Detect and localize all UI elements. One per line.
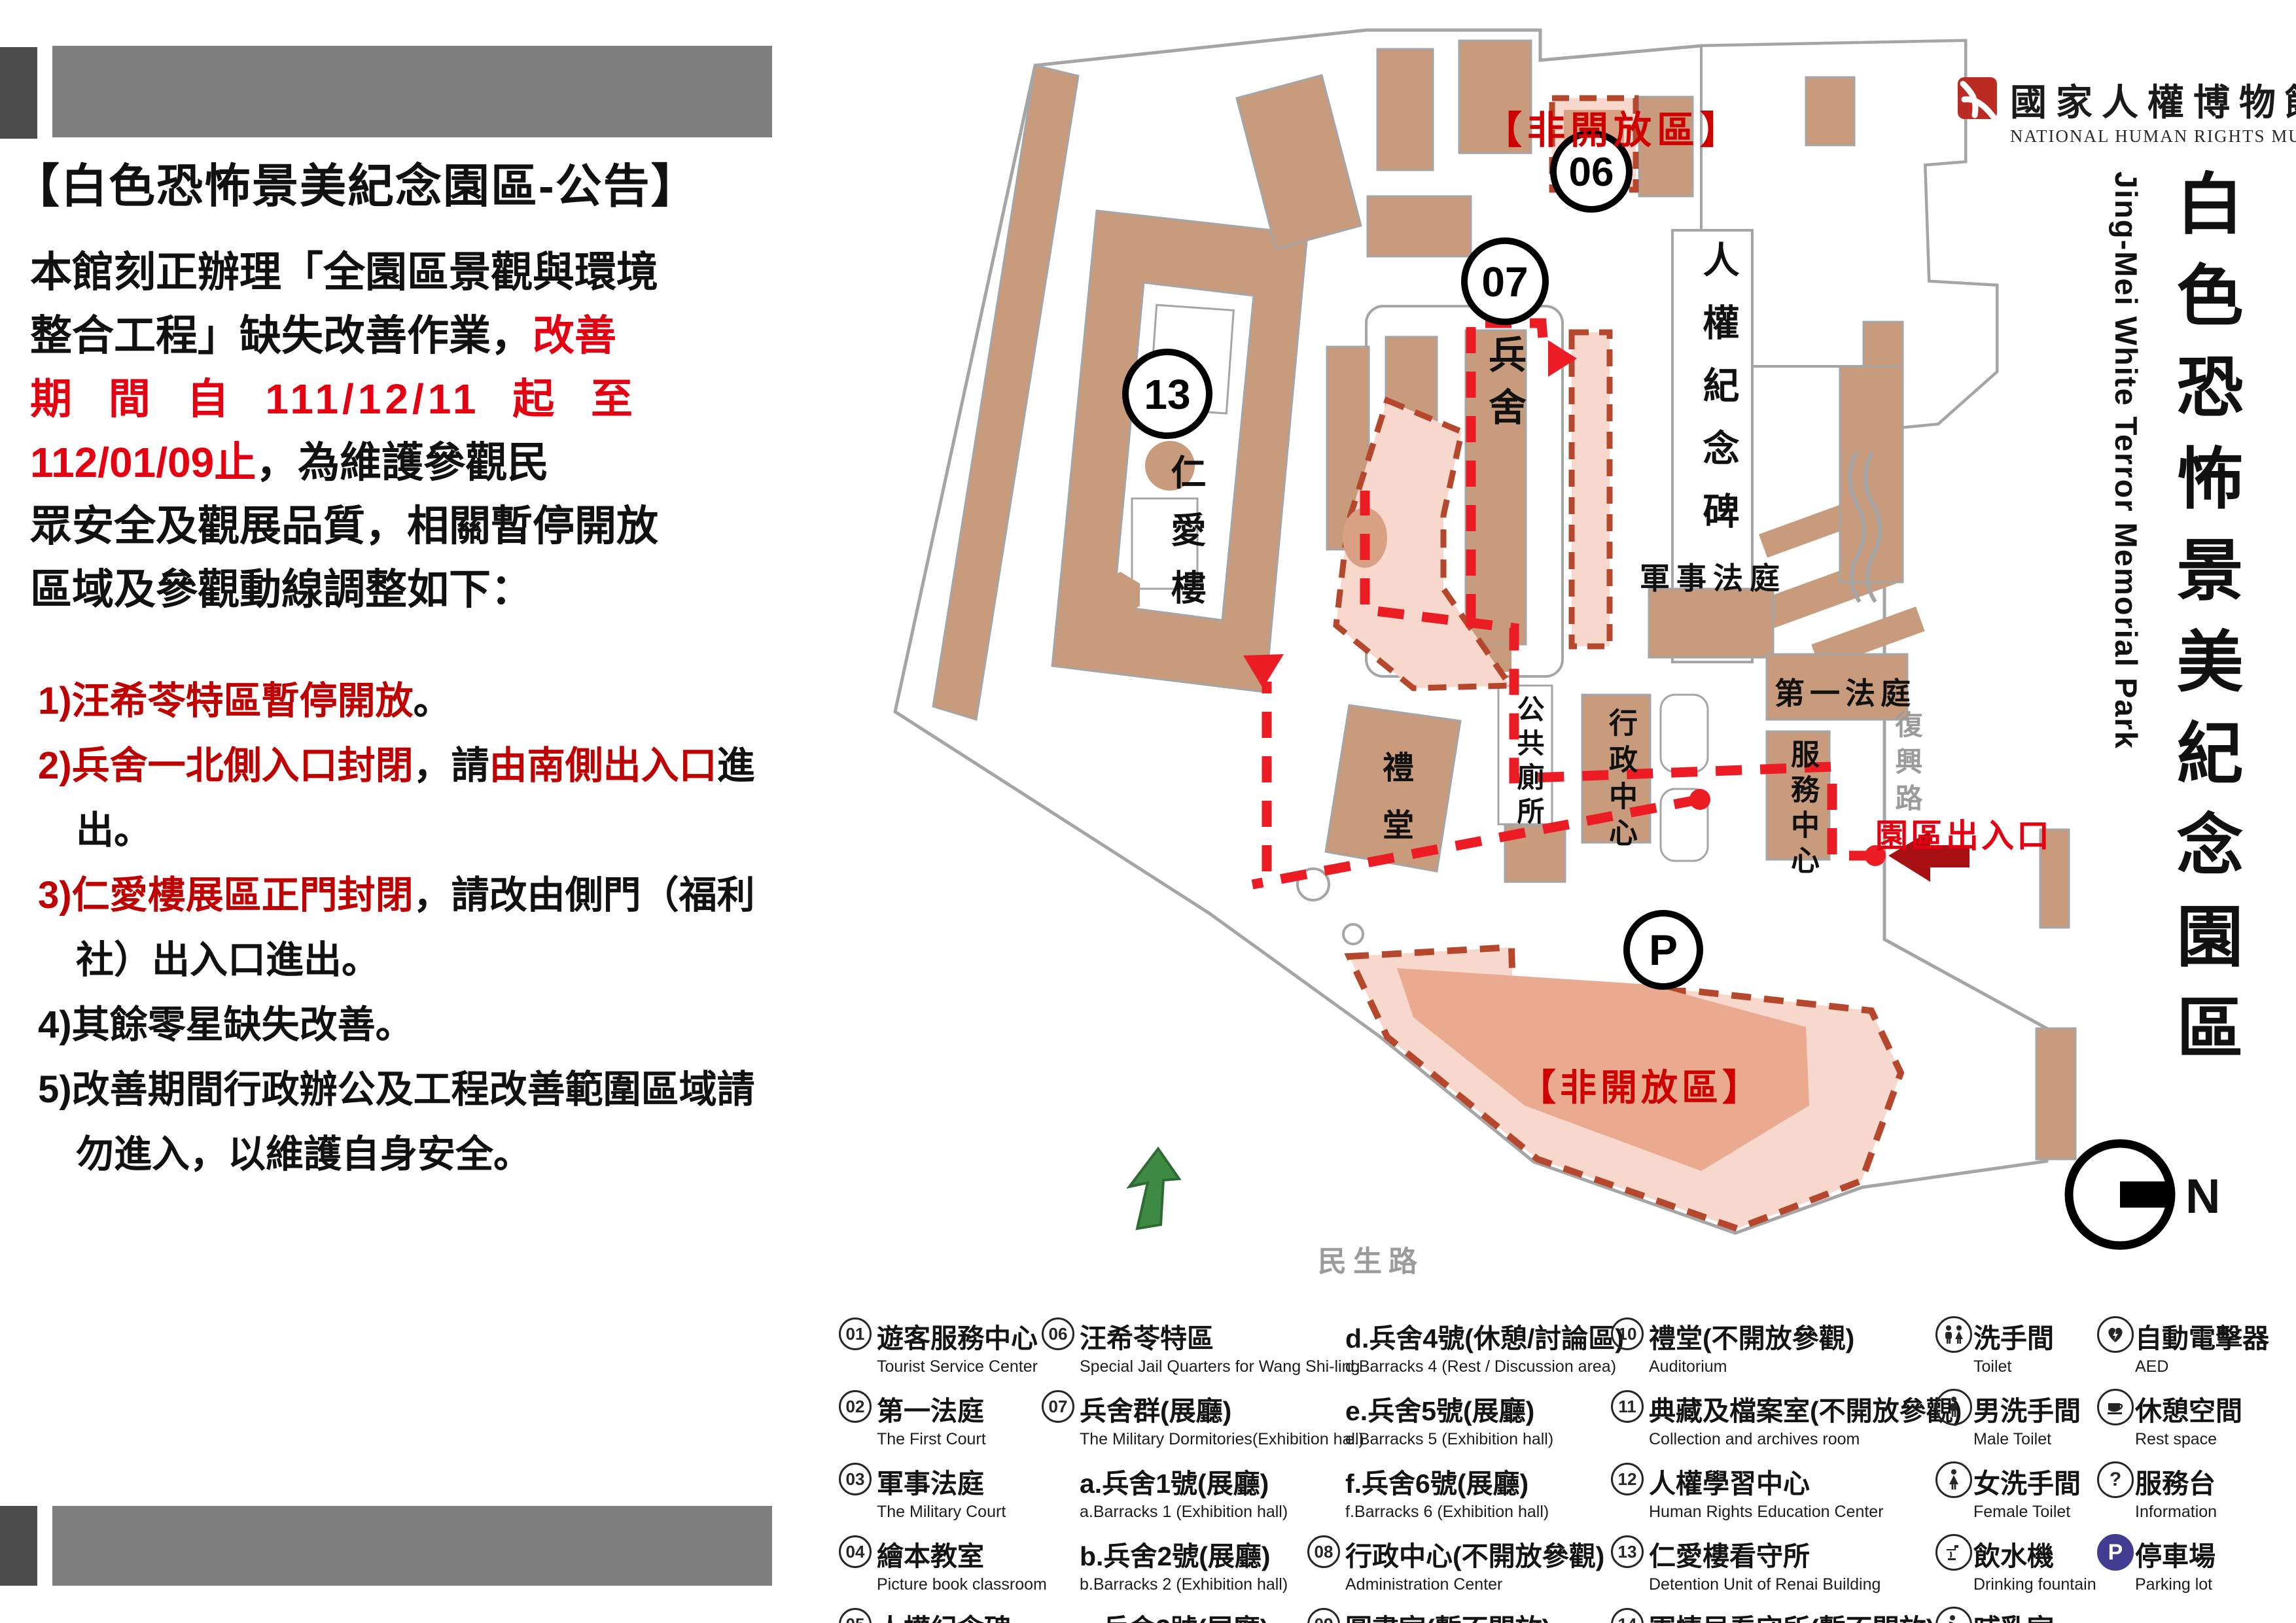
legend-item: f.兵舍6號(展廳)f.Barracks 6 (Exhibition hall) — [1307, 1461, 1621, 1522]
compass-north-label: N — [2185, 1168, 2220, 1224]
legend-item: P 停車場Parking lot — [2097, 1534, 2280, 1594]
legend-column-6: 自動電擊器AED 休憩空間Rest space ? 服務台Information… — [2097, 1316, 2280, 1607]
legend-item: 哺乳室Nursing room — [1935, 1607, 2106, 1623]
side-title-chinese: 白色恐怖景美紀念園區 — [2157, 169, 2253, 1085]
closed-barracks-strip — [1572, 332, 1610, 646]
side-title-english: Jing-Mei White Terror Memorial Park — [2108, 171, 2144, 826]
minsheng-road-label: 民生路 — [1318, 1238, 1424, 1280]
legend-item: 08行政中心(不開放參觀)Administration Center — [1307, 1534, 1621, 1594]
legend-item: 12人權學習中心Human Rights Education Center — [1611, 1461, 1951, 1522]
military-court-label: 軍事法庭 — [1640, 555, 1786, 598]
legend-item: 女洗手間Female Toilet — [1935, 1461, 2106, 1522]
legend-badge: 13 — [1611, 1535, 1644, 1568]
barracks-label: 兵舍 — [1476, 335, 1531, 440]
gate-strip — [2036, 1028, 2075, 1159]
service-center-label: 服務中心 — [1781, 739, 1823, 881]
legend-badge: 05 — [839, 1608, 872, 1623]
museum-logo: 國家人權博物館 NATIONAL HUMAN RIGHTS MUSEUM — [1958, 73, 2296, 147]
legend-badge: 09 — [1307, 1608, 1340, 1623]
poster-page: 【白色恐怖景美紀念園區-公告】 本館刻正辦理「全園區景觀與環境 整合工程」缺失改… — [0, 0, 2296, 1623]
north-building — [1377, 49, 1433, 170]
legend-item: 飲水機Drinking fountain — [1935, 1534, 2106, 1594]
memorial-label: 人權紀念碑 — [1692, 241, 1745, 555]
first-court-label: 第一法庭 — [1775, 670, 1916, 713]
public-toilet-label: 公共廁所 — [1509, 695, 1549, 831]
fuxing-road-label: 復興路 — [1887, 710, 1927, 820]
legend-item: 09圖書室(暫不開放)Library — [1307, 1607, 1621, 1623]
parking-icon: P — [2097, 1534, 2134, 1571]
military-court-building — [1649, 589, 1773, 657]
green-arrow-icon — [1129, 1149, 1179, 1229]
legend-item: d.兵舍4號(休憩/討論區)d.Barracks 4 (Rest / Discu… — [1307, 1316, 1621, 1376]
renai-label: 仁愛樓 — [1159, 454, 1211, 627]
legend-badge: 07 — [1042, 1390, 1074, 1423]
small-circle-structure — [1343, 924, 1363, 944]
legend-item: 13仁愛樓看守所Detention Unit of Renai Building — [1611, 1534, 1951, 1594]
legend-item: 11典藏及檔案室(不開放參觀)Collection and archives r… — [1611, 1389, 1951, 1449]
museum-logo-icon — [1958, 73, 2000, 122]
marker-07-number: 07 — [1472, 258, 1538, 306]
marker-13-number: 13 — [1135, 370, 1200, 419]
legend-item: 自動電擊器AED — [2097, 1316, 2280, 1376]
aed-icon — [2097, 1316, 2134, 1353]
legend-item: 洗手間Toilet — [1935, 1316, 2106, 1376]
toilet-icon — [1935, 1316, 1972, 1353]
legend-column-3: d.兵舍4號(休憩/討論區)d.Barracks 4 (Rest / Discu… — [1307, 1316, 1621, 1623]
legend-badge: 12 — [1611, 1463, 1644, 1495]
marker-parking-letter: P — [1631, 925, 1696, 975]
legend-badge: 10 — [1611, 1318, 1644, 1350]
legend-column-4: 10禮堂(不開放參觀)Auditorium 11典藏及檔案室(不開放參觀)Col… — [1611, 1316, 1951, 1623]
closed-zone-bottom-label: 【非開放區】 — [1519, 1058, 1763, 1111]
legend-badge: 08 — [1307, 1535, 1340, 1568]
female-toilet-icon — [1935, 1461, 1972, 1498]
legend-badge: 02 — [839, 1390, 872, 1423]
admin-center-label: 行政中心 — [1599, 708, 1641, 854]
legend-badge: 11 — [1611, 1390, 1644, 1423]
legend-item: 休憩空間Rest space — [2097, 1389, 2280, 1449]
marker-06-number: 06 — [1559, 149, 1624, 196]
compass-bar — [2120, 1181, 2172, 1208]
north-building — [1368, 196, 1471, 256]
route-dot-junction — [1689, 789, 1710, 810]
legend-badge: 01 — [839, 1318, 872, 1350]
male-toilet-icon — [1935, 1389, 1972, 1425]
drinking-fountain-icon — [1935, 1534, 1972, 1571]
legend-item: ? 服務台Information — [2097, 1461, 2280, 1522]
museum-logo-en: NATIONAL HUMAN RIGHTS MUSEUM — [2010, 126, 2296, 147]
auditorium-label: 禮堂 — [1371, 751, 1417, 866]
nursing-room-icon — [1935, 1607, 1972, 1623]
rest-space-icon — [2097, 1389, 2134, 1425]
legend-badge: 06 — [1042, 1318, 1074, 1350]
legend-badge: 14 — [1611, 1608, 1644, 1623]
white-structure — [1661, 695, 1708, 772]
legend-item: 男洗手間Male Toilet — [1935, 1389, 2106, 1449]
museum-logo-zh: 國家人權博物館 — [2010, 73, 2296, 126]
information-icon: ? — [2097, 1461, 2134, 1498]
northeast-building — [1806, 77, 1854, 145]
legend-item: 14軍情局看守所(暫不開放)Detention Unit of Military… — [1611, 1607, 1951, 1623]
legend-item: 10禮堂(不開放參觀)Auditorium — [1611, 1316, 1951, 1376]
closed-zone-top-label: 【非開放區】 — [1484, 99, 1743, 154]
legend-column-5: 洗手間Toilet 男洗手間Male Toilet 女洗手間Female Toi… — [1935, 1316, 2106, 1623]
legend-badge: 03 — [839, 1463, 872, 1495]
legend-item: e.兵舍5號(展廳)e.Barracks 5 (Exhibition hall) — [1307, 1389, 1621, 1449]
legend-badge: 04 — [839, 1535, 872, 1568]
